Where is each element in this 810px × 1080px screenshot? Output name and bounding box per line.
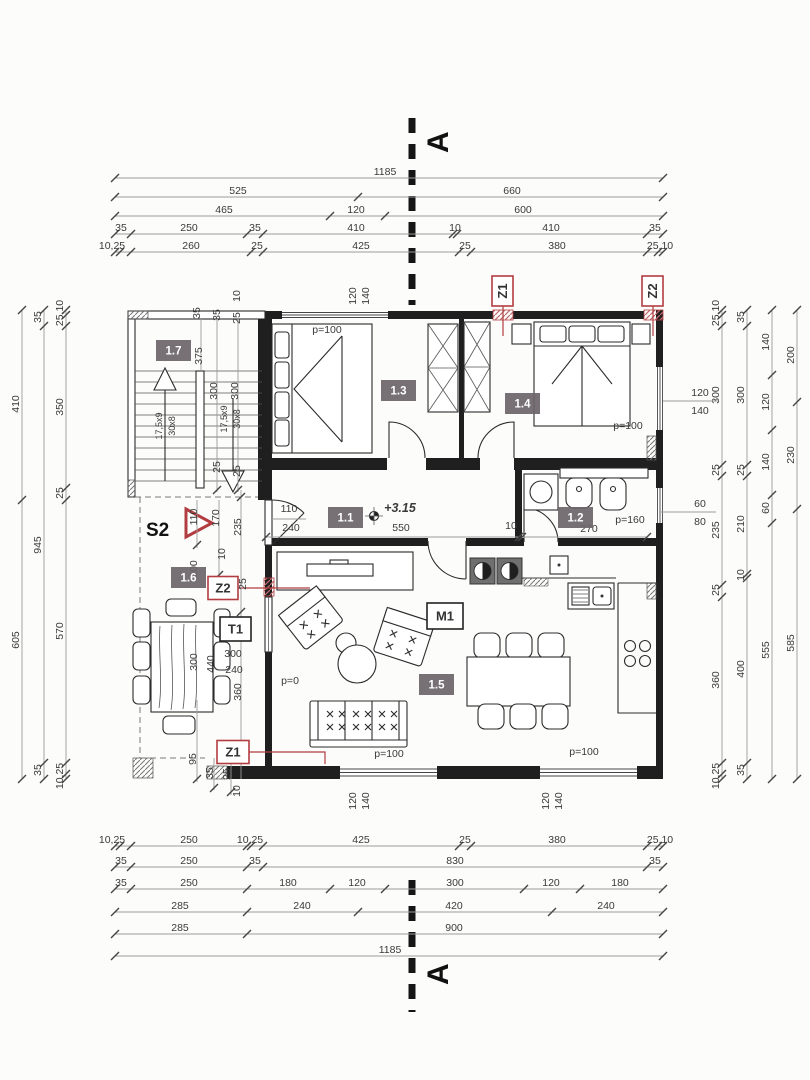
plan-annotation: 80 xyxy=(694,516,706,528)
dim-label: 660 xyxy=(503,185,521,197)
dim-label: 380 xyxy=(548,834,566,846)
dim-label: 555 xyxy=(760,641,772,659)
plan-annotation: 10 xyxy=(231,290,243,302)
plan-annotation: 550 xyxy=(392,522,410,534)
plan-annotation: 300 xyxy=(208,382,220,400)
plan-annotation: 120 xyxy=(691,387,709,399)
dim-label: 35 xyxy=(32,311,44,323)
dim-label: 10,25 xyxy=(237,834,263,846)
dim-label: 10 xyxy=(735,569,747,581)
plan-annotation: 25 xyxy=(221,768,233,780)
dim-label: 380 xyxy=(548,240,566,252)
dim-label: 240 xyxy=(293,900,311,912)
dim-label: 25,10 xyxy=(647,834,673,846)
plan-annotation: 235 xyxy=(232,518,244,536)
dim-label: 25 xyxy=(251,240,263,252)
plan-annotation: 120 xyxy=(347,287,359,305)
room-label: 1.3 xyxy=(391,386,407,398)
plan-annotation: 35 xyxy=(204,767,216,779)
level-marker xyxy=(365,507,383,525)
kitchen-sink xyxy=(568,583,614,609)
plan-annotation: 10 xyxy=(505,520,517,532)
terrace-door-opening xyxy=(265,597,272,652)
plan-annotation: 110 xyxy=(281,503,298,515)
dim-label: 410 xyxy=(10,395,22,413)
nightstand xyxy=(512,324,531,344)
plan-annotation: 360 xyxy=(232,683,244,701)
plan-annotation: 17,5x9 xyxy=(154,412,164,439)
plan-annotation: 300 xyxy=(224,648,242,660)
dim-label: 140 xyxy=(760,453,772,471)
plan-annotation: 60 xyxy=(694,498,706,510)
dim-label: 35 xyxy=(249,855,261,867)
sofa xyxy=(310,701,407,747)
post-z2-left xyxy=(264,578,274,596)
plan-annotation: 30x8 xyxy=(232,409,242,429)
section-cut-line-top: A xyxy=(412,118,455,305)
plan-annotation: +3.15 xyxy=(384,501,417,515)
marker-label: Z1 xyxy=(225,745,240,760)
post xyxy=(128,480,135,497)
plan-annotation: 10 xyxy=(216,548,228,560)
window-bathroom-right xyxy=(656,488,663,523)
plan-annotation: 300 xyxy=(229,382,241,400)
plan-annotation: 120 xyxy=(347,792,359,810)
marker-label: Z2 xyxy=(645,283,660,298)
dim-label: 240 xyxy=(597,900,615,912)
dim-label: 25 xyxy=(54,487,66,499)
dim-label: 260 xyxy=(182,240,200,252)
counter-hatch xyxy=(524,578,548,586)
dim-label: 350 xyxy=(54,398,66,416)
dim-label: 25 xyxy=(710,464,722,476)
entry-door-opening xyxy=(265,500,272,545)
dim-label: 235 xyxy=(710,521,722,539)
dim-label: 945 xyxy=(32,536,44,554)
chair xyxy=(474,633,500,658)
dim-label: 410 xyxy=(542,222,560,234)
room-label: 1.4 xyxy=(515,399,532,411)
post xyxy=(647,583,656,599)
dim-label: 830 xyxy=(446,855,464,867)
pillow xyxy=(275,392,289,418)
dim-label: 10 xyxy=(449,222,461,234)
chair xyxy=(538,633,564,658)
dim-label: 605 xyxy=(10,631,22,649)
door-bedroom-1-4 xyxy=(478,422,514,458)
dim-label: 10,25 xyxy=(710,763,722,789)
floor-plan-sheet: A A xyxy=(0,0,810,1080)
room-label: 1.7 xyxy=(166,346,182,358)
plan-annotation: 17,5x9 xyxy=(219,405,229,432)
dim-label: 285 xyxy=(171,922,189,934)
plan-annotation: 110 xyxy=(188,508,200,525)
room-label: 1.1 xyxy=(338,513,355,525)
dim-label: 35 xyxy=(115,855,127,867)
dim-label: 35 xyxy=(649,222,661,234)
plan-annotation: 35 xyxy=(191,307,203,319)
plan-annotation: p=0 xyxy=(281,675,299,687)
plan-annotation: 120 xyxy=(540,792,552,810)
pillow xyxy=(598,326,624,342)
dim-label: 35 xyxy=(249,222,261,234)
plan-annotation: p=100 xyxy=(312,324,342,336)
wardrobe-1-3 xyxy=(428,324,458,412)
sideboard xyxy=(277,552,413,590)
plan-annotation: 240 xyxy=(225,664,243,676)
pillow xyxy=(275,420,289,446)
dim-label: 35 xyxy=(735,764,747,776)
dim-label: 25,10 xyxy=(647,240,673,252)
plan-annotation: 140 xyxy=(691,405,709,417)
dim-label: 35 xyxy=(115,877,127,889)
plan-annotation: p=160 xyxy=(615,514,645,526)
dim-label: 35 xyxy=(115,222,127,234)
post xyxy=(647,436,656,460)
marker-label: M1 xyxy=(436,609,454,624)
dim-label: 35 xyxy=(32,764,44,776)
section-letter: A xyxy=(422,963,455,985)
plan-annotation: 25 xyxy=(211,461,223,473)
section-letter: A xyxy=(422,131,455,153)
bedroom-divider-wall xyxy=(459,319,464,458)
plan-annotation: 375 xyxy=(193,347,205,365)
washbasin xyxy=(524,474,558,510)
door-bedroom-1-3 xyxy=(389,422,425,458)
chair xyxy=(133,676,150,704)
coffee-table xyxy=(338,645,376,683)
chair xyxy=(163,716,195,734)
dim-label: 25 xyxy=(735,464,747,476)
plan-annotation: 25 xyxy=(231,465,243,477)
plan-annotation: 440 xyxy=(205,655,217,673)
dim-label: 425 xyxy=(352,240,370,252)
dim-label: 25,10 xyxy=(54,300,66,326)
floor-plan-canvas: A A xyxy=(0,0,810,1080)
dim-label: 140 xyxy=(760,333,772,351)
dim-label: 35 xyxy=(735,311,747,323)
dining-table xyxy=(467,657,570,706)
dim-label: 230 xyxy=(785,446,797,464)
dim-label: 250 xyxy=(180,855,198,867)
pillow xyxy=(275,332,289,358)
s2-label: S2 xyxy=(146,520,169,541)
wardrobe-1-4 xyxy=(464,322,490,412)
dim-label: 10,25 xyxy=(99,834,125,846)
plan-annotation: 240 xyxy=(282,522,300,534)
dim-label: 10,25 xyxy=(99,240,125,252)
chair xyxy=(510,704,536,729)
dim-label: 120 xyxy=(348,877,366,889)
furniture-bedroom-1-3 xyxy=(272,324,372,453)
armchair xyxy=(279,586,344,650)
chair xyxy=(133,609,150,637)
dim-label: 300 xyxy=(735,386,747,404)
plan-annotation: p=100 xyxy=(613,420,643,432)
dim-label: 210 xyxy=(735,515,747,533)
armchair xyxy=(373,607,435,666)
dim-label: 1185 xyxy=(374,166,397,178)
dim-label: 120 xyxy=(542,877,560,889)
chair xyxy=(133,642,150,670)
dim-label: 400 xyxy=(735,660,747,678)
dining-set xyxy=(467,633,570,729)
plan-annotation: 140 xyxy=(360,287,372,305)
plan-annotation: 95 xyxy=(187,753,199,765)
marker-label: Z1 xyxy=(495,283,510,298)
window-bottom-left xyxy=(340,766,437,779)
plan-annotation: p=100 xyxy=(374,748,404,760)
dim-label: 465 xyxy=(215,204,233,216)
plan-annotation: 140 xyxy=(553,792,565,810)
plan-annotation: 140 xyxy=(360,792,372,810)
dim-label: 250 xyxy=(180,877,198,889)
dim-label: 120 xyxy=(760,393,772,411)
dim-label: 25 xyxy=(459,834,471,846)
plan-annotation: 10 xyxy=(231,785,243,797)
s2-marker: S2 xyxy=(146,509,212,541)
dim-label: 570 xyxy=(54,622,66,640)
dim-label: 200 xyxy=(785,346,797,364)
plan-annotation: 300 xyxy=(188,653,200,671)
window-bottom-right xyxy=(540,766,637,779)
dim-label: 35 xyxy=(649,855,661,867)
chair xyxy=(166,599,196,616)
dim-label: 585 xyxy=(785,634,797,652)
pillow xyxy=(569,326,595,342)
plan-annotation: 25 xyxy=(237,578,249,590)
stairwell-left-wall xyxy=(128,319,135,497)
dim-label: 60 xyxy=(760,502,772,514)
dim-label: 360 xyxy=(710,671,722,689)
marker-label: T1 xyxy=(228,622,243,637)
plan-annotation: 35 xyxy=(211,309,223,321)
plan-annotation: 30x8 xyxy=(167,416,177,436)
window-bedroom-1-3-top xyxy=(282,311,388,319)
toilet xyxy=(566,478,592,508)
dim-label: 600 xyxy=(514,204,532,216)
pillow xyxy=(275,362,289,388)
room-label: 1.2 xyxy=(568,513,584,525)
dim-label: 25 xyxy=(710,584,722,596)
dim-label: 900 xyxy=(445,922,463,934)
window-bedroom-1-4-right xyxy=(656,367,663,430)
plan-annotation: 170 xyxy=(210,509,222,527)
room-label: 1.5 xyxy=(429,680,446,692)
bidet xyxy=(600,478,626,510)
pillow xyxy=(540,326,566,342)
post xyxy=(128,311,148,319)
nightstand xyxy=(632,324,650,344)
dim-label: 120 xyxy=(347,204,365,216)
stair-stringer xyxy=(196,371,204,488)
chair xyxy=(214,676,230,704)
z1-bottom-leader xyxy=(249,752,325,764)
bathroom-fixtures xyxy=(524,468,648,510)
chair xyxy=(478,704,504,729)
chair xyxy=(506,633,532,658)
stove xyxy=(625,641,651,667)
dim-label: 25 xyxy=(459,240,471,252)
dim-label: 10,25 xyxy=(54,763,66,789)
bath-counter xyxy=(560,468,648,478)
dim-label: 250 xyxy=(180,834,198,846)
dim-label: 180 xyxy=(279,877,297,889)
dim-label: 25,10 xyxy=(710,300,722,326)
dim-label: 1185 xyxy=(379,944,402,956)
plan-annotation: 25 xyxy=(231,312,243,324)
dim-label: 285 xyxy=(171,900,189,912)
dim-label: 300 xyxy=(446,877,464,889)
dim-label: 425 xyxy=(352,834,370,846)
dim-label: 180 xyxy=(611,877,629,889)
room-label: 1.6 xyxy=(181,573,197,585)
plan-annotation: p=100 xyxy=(569,746,599,758)
dim-label: 410 xyxy=(347,222,365,234)
marker-label: Z2 xyxy=(215,581,230,596)
dim-label: 525 xyxy=(229,185,247,197)
dim-label: 250 xyxy=(180,222,198,234)
chair xyxy=(542,704,568,729)
post xyxy=(133,758,153,778)
dim-label: 420 xyxy=(445,900,463,912)
door-living xyxy=(428,541,466,579)
